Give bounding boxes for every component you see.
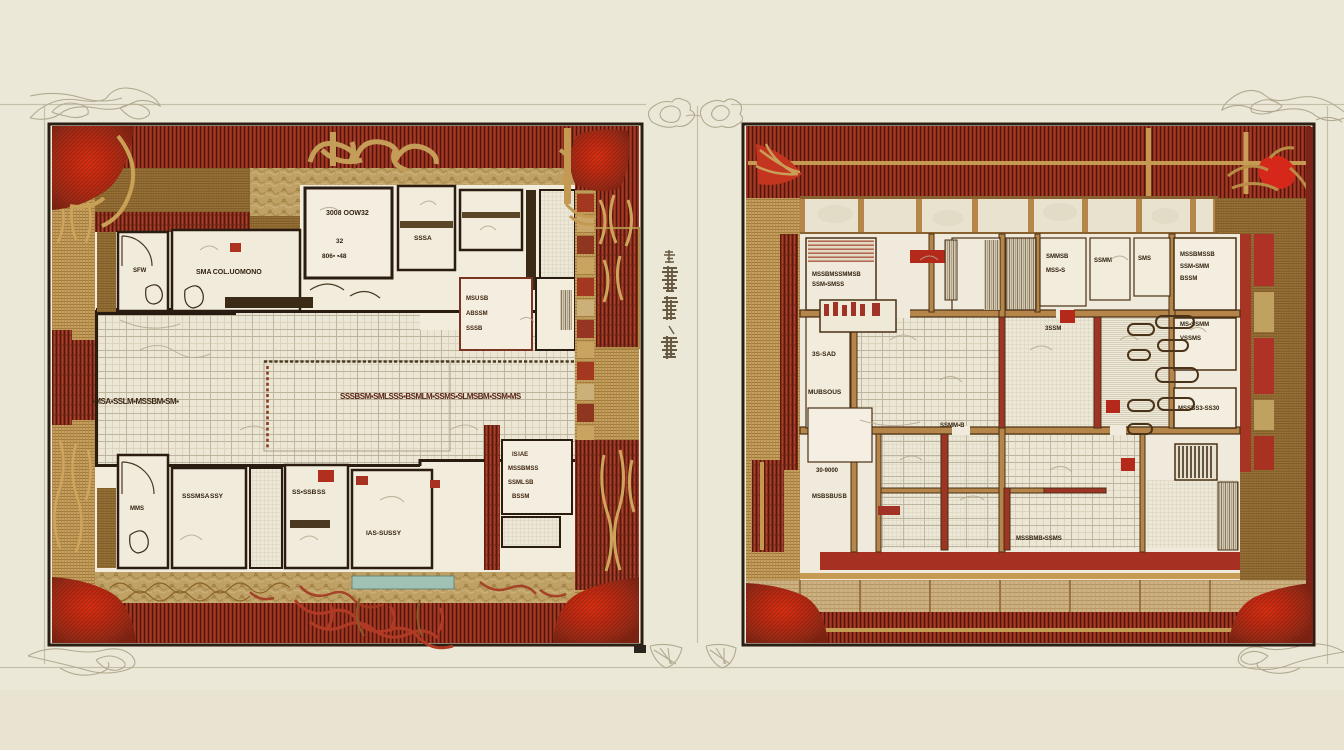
svg-text:MSS▪S: MSS▪S [1046, 268, 1065, 274]
svg-text:BSSM: BSSM [1180, 276, 1197, 282]
svg-text:MSSBMSS: MSSBMSS [508, 466, 538, 472]
svg-text:3SSM: 3SSM [1045, 326, 1061, 332]
svg-text:SSMM▪B: SSMM▪B [940, 423, 965, 429]
svg-text:SSML SB: SSML SB [508, 480, 534, 486]
svg-text:SSSA: SSSA [414, 235, 432, 242]
svg-text:32: 32 [336, 238, 344, 245]
svg-text:IAS-SUSSY: IAS-SUSSY [366, 530, 402, 537]
svg-text:MMS: MMS [130, 506, 144, 512]
svg-text:VSSMS: VSSMS [1180, 336, 1201, 342]
svg-text:MSBSBUS B: MSBSBUS B [812, 494, 848, 500]
svg-text:SSMM: SSMM [1094, 258, 1112, 264]
svg-text:SSSBSM▪SMLSSS▪BSMLM▪SSMS▪SLMSB: SSSBSM▪SMLSSS▪BSMLM▪SSMS▪SLMSBM▪SSM▪MS [340, 392, 522, 401]
svg-text:SS▪SSB SS: SS▪SSB SS [292, 489, 326, 496]
svg-text:IS IAE: IS IAE [512, 452, 528, 458]
svg-text:MSSBMSSB: MSSBMSSB [1180, 252, 1215, 258]
svg-text:30-9000: 30-9000 [816, 468, 839, 474]
svg-text:SMMSB: SMMSB [1046, 254, 1069, 260]
svg-text:SSSB: SSSB [466, 326, 483, 332]
svg-text:SSM▪SMSS: SSM▪SMSS [812, 282, 844, 288]
svg-text:MSU SB: MSU SB [466, 296, 489, 302]
svg-text:BSSM: BSSM [512, 494, 529, 500]
svg-text:SFW: SFW [133, 268, 147, 274]
svg-text:SMA COL.UOMONO: SMA COL.UOMONO [196, 269, 262, 276]
svg-text:MSSBMB▪SSMS: MSSBMB▪SSMS [1016, 536, 1062, 542]
svg-text:SMS: SMS [1138, 256, 1151, 262]
svg-text:MSSBMSSMMSB: MSSBMSSMMSB [812, 272, 861, 278]
svg-text:3008 OOW32: 3008 OOW32 [326, 210, 369, 217]
svg-text:ABSSM: ABSSM [466, 311, 488, 317]
svg-text:▪MSA▪SSLM▪MSSBM▪SM▪: ▪MSA▪SSLM▪MSSBM▪SM▪ [92, 397, 179, 406]
svg-text:3S-SAD: 3S-SAD [812, 351, 836, 358]
svg-text:SSSMSA SSY: SSSMSA SSY [182, 493, 224, 500]
svg-text:SSM▪SMM: SSM▪SMM [1180, 264, 1209, 270]
svg-text:806▪ ▪48: 806▪ ▪48 [322, 253, 347, 260]
svg-text:MUBSOUS: MUBSOUS [808, 389, 842, 396]
